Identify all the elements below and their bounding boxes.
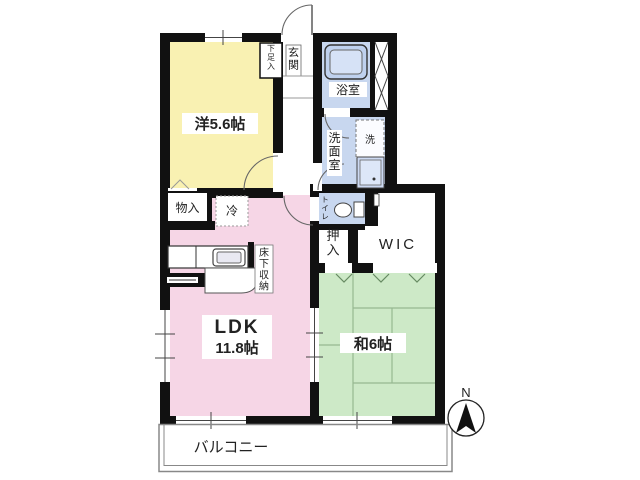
fusuma-closet-opening xyxy=(325,263,352,273)
washroom-door-opening xyxy=(313,163,322,191)
pipe-space xyxy=(375,42,388,110)
vanity-icon xyxy=(357,157,384,188)
underfloor-storage-label: 床下収納 xyxy=(259,246,269,293)
washroom-label: 洗面室 xyxy=(328,131,340,172)
counter-return xyxy=(205,268,258,293)
bathroom-label: 浴室 xyxy=(336,82,360,97)
japanese-room-label: 和6帖 xyxy=(354,335,392,353)
kitchen-hatch-slit xyxy=(167,277,198,283)
balcony-label: バルコニー xyxy=(194,439,269,456)
wic-label: WIC xyxy=(379,236,417,253)
compass-n-label: N xyxy=(461,385,470,400)
toilet-label: トイレ xyxy=(321,195,329,221)
fridge-label: 冷 xyxy=(226,204,238,218)
ldk-size-label: 11.8帖 xyxy=(215,339,258,357)
western-room-label: 洋5.6帖 xyxy=(195,115,246,133)
compass: N xyxy=(448,385,484,436)
wall-washroom-right xyxy=(385,110,397,193)
toilet-slit-window xyxy=(374,194,379,206)
storage-label: 物入 xyxy=(175,201,199,215)
toilet-door-opening xyxy=(310,197,319,221)
floor-plan-canvas: N 洋5.6帖 玄関 下足入 浴室 洗面室 洗 トイレ 物入 冷 床下収納 LD… xyxy=(0,0,640,480)
floor-plan: N 洋5.6帖 玄関 下足入 浴室 洗面室 洗 トイレ 物入 冷 床下収納 LD… xyxy=(0,0,640,480)
closet-label: 押入 xyxy=(326,228,339,258)
washer-label: 洗 xyxy=(365,134,375,146)
ldk-label: LDK xyxy=(214,317,259,338)
bathtub-icon xyxy=(325,45,367,79)
western-door-opening xyxy=(273,153,283,192)
bathroom-door-opening xyxy=(324,108,350,117)
entrance-door xyxy=(282,5,312,35)
wall-kitchen-stub xyxy=(248,242,254,270)
entrance-opening xyxy=(281,33,313,42)
fusuma-wic-opening xyxy=(373,263,437,273)
shoe-cabinet-label: 下足入 xyxy=(267,44,275,71)
entrance-label: 玄関 xyxy=(288,45,299,71)
wall-right-lower xyxy=(435,184,445,425)
wall-closet-wic-divider xyxy=(348,226,358,263)
